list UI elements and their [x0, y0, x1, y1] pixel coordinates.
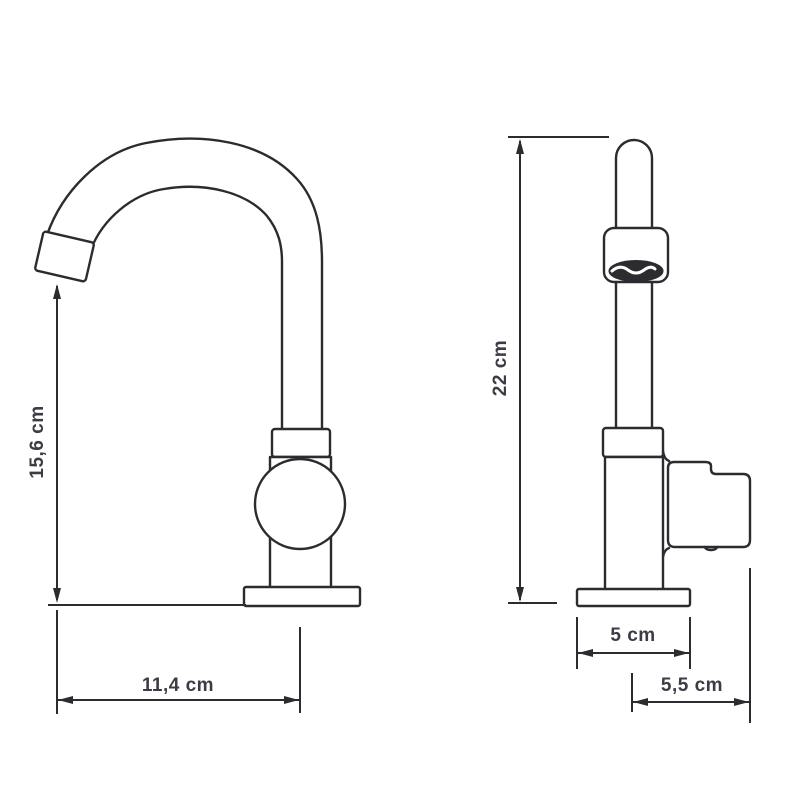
left-base-flange	[244, 587, 360, 606]
valve-ball-handle	[255, 459, 345, 549]
front-base-flange	[577, 589, 690, 606]
front-body-column	[605, 457, 663, 590]
faucet-technical-drawing-page: 15,6 cm 11,4 cm	[0, 0, 800, 800]
arrow-up-icon	[516, 139, 524, 154]
arrow-right-icon	[734, 698, 749, 706]
spout-nozzle	[35, 231, 95, 282]
arrow-right-icon	[284, 696, 299, 704]
spout-inner-curve	[91, 187, 282, 429]
left-body-collar	[272, 429, 330, 457]
arrow-down-icon	[53, 588, 61, 603]
arrow-left-icon	[633, 698, 648, 706]
left-view-side-profile	[35, 139, 360, 606]
handle-depth-label: 5,5 cm	[661, 675, 723, 696]
dimension-base-width: 5 cm	[577, 617, 690, 669]
spout-reach-label: 11,4 cm	[142, 675, 214, 696]
dimension-total-height: 22 cm	[490, 139, 524, 602]
front-body-collar	[603, 428, 663, 457]
arrow-left-icon	[58, 696, 73, 704]
arrow-up-icon	[53, 284, 61, 299]
spout-height-label: 15,6 cm	[27, 405, 48, 478]
front-spout-top	[616, 140, 652, 228]
faucet-technical-drawing: 15,6 cm 11,4 cm	[0, 0, 800, 800]
side-lever-handle	[668, 462, 750, 547]
right-view-front-profile	[508, 137, 750, 606]
arrow-down-icon	[516, 587, 524, 602]
dimension-spout-reach: 11,4 cm	[57, 610, 300, 714]
total-height-label: 22 cm	[490, 340, 511, 396]
spout-outer-curve	[47, 139, 322, 429]
base-width-label: 5 cm	[610, 625, 655, 646]
arrow-left-icon	[578, 649, 593, 657]
aerator-outlet	[609, 261, 663, 282]
arrow-right-icon	[674, 649, 689, 657]
dimension-spout-height: 15,6 cm	[27, 284, 61, 603]
